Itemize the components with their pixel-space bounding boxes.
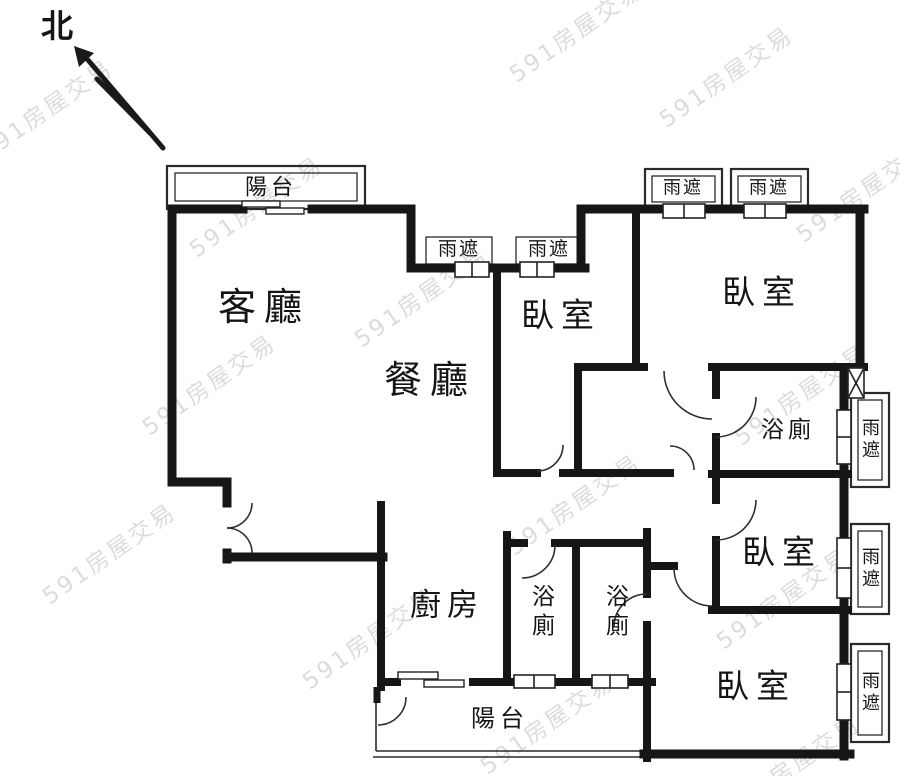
rain-cover-label-right-2: 雨遮 xyxy=(860,547,878,591)
rain-cover-label-recess-right: 雨遮 xyxy=(528,240,570,260)
room-label-bathroom-center-right: 浴廁 xyxy=(603,584,626,642)
door-bathroom-right xyxy=(716,397,756,437)
room-label-bedroom-top-right: 臥室 xyxy=(722,276,802,311)
pipe-shaft xyxy=(848,368,864,398)
room-label-balcony-top: 陽台 xyxy=(245,176,297,199)
north-label: 北 xyxy=(41,10,73,44)
room-label-bathroom-right: 浴廁 xyxy=(761,418,815,442)
door-corridor-south xyxy=(674,568,712,606)
rain-cover-label-right-3: 雨遮 xyxy=(860,671,878,715)
room-label-living-room: 客廳 xyxy=(218,288,310,328)
room-label-kitchen: 廚房 xyxy=(410,590,484,623)
room-label-bathroom-center-left: 浴廁 xyxy=(529,584,552,642)
floor-plan-page: 591房屋交易 591房屋交易 591房屋交易 591房屋交易 591房屋交易 … xyxy=(0,0,900,776)
room-label-bedroom-right-middle: 臥室 xyxy=(742,536,822,571)
room-label-balcony-bottom: 陽台 xyxy=(471,706,529,731)
door-arcs xyxy=(227,371,756,725)
rain-cover-label-right-1: 雨遮 xyxy=(860,418,878,462)
room-label-bedroom-middle: 臥室 xyxy=(521,299,601,334)
door-bedroom-middle xyxy=(537,445,563,471)
rain-cover-label-recess-left: 雨遮 xyxy=(438,240,480,260)
room-label-dining-room: 餐廳 xyxy=(384,361,476,401)
room-label-bedroom-bottom-right: 臥室 xyxy=(716,670,796,705)
door-balcony-bottom xyxy=(378,697,406,725)
rain-cover-label-top-2: 雨遮 xyxy=(749,180,789,199)
rain-cover-label-top-1: 雨遮 xyxy=(663,180,703,199)
north-arrow-icon xyxy=(74,46,163,148)
door-hallway xyxy=(670,446,694,470)
door-bathroom-center-left xyxy=(522,545,555,578)
door-bedroom-top-right xyxy=(664,371,712,419)
